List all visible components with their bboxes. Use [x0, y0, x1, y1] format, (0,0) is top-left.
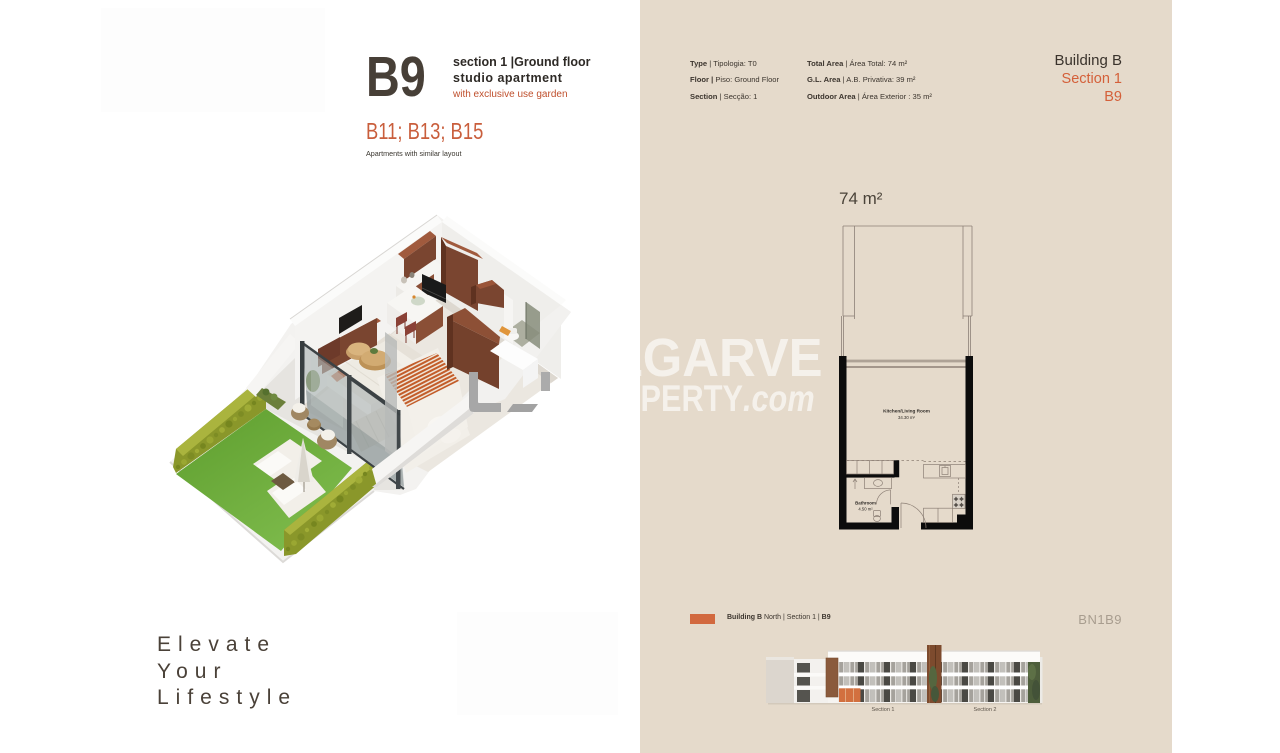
- svg-text:4.50 m²: 4.50 m²: [858, 507, 873, 512]
- svg-text:Kitchen/Living Room: Kitchen/Living Room: [883, 409, 930, 414]
- svg-text:34.30 m²: 34.30 m²: [898, 415, 916, 420]
- svg-text:Bathroom: Bathroom: [855, 501, 876, 506]
